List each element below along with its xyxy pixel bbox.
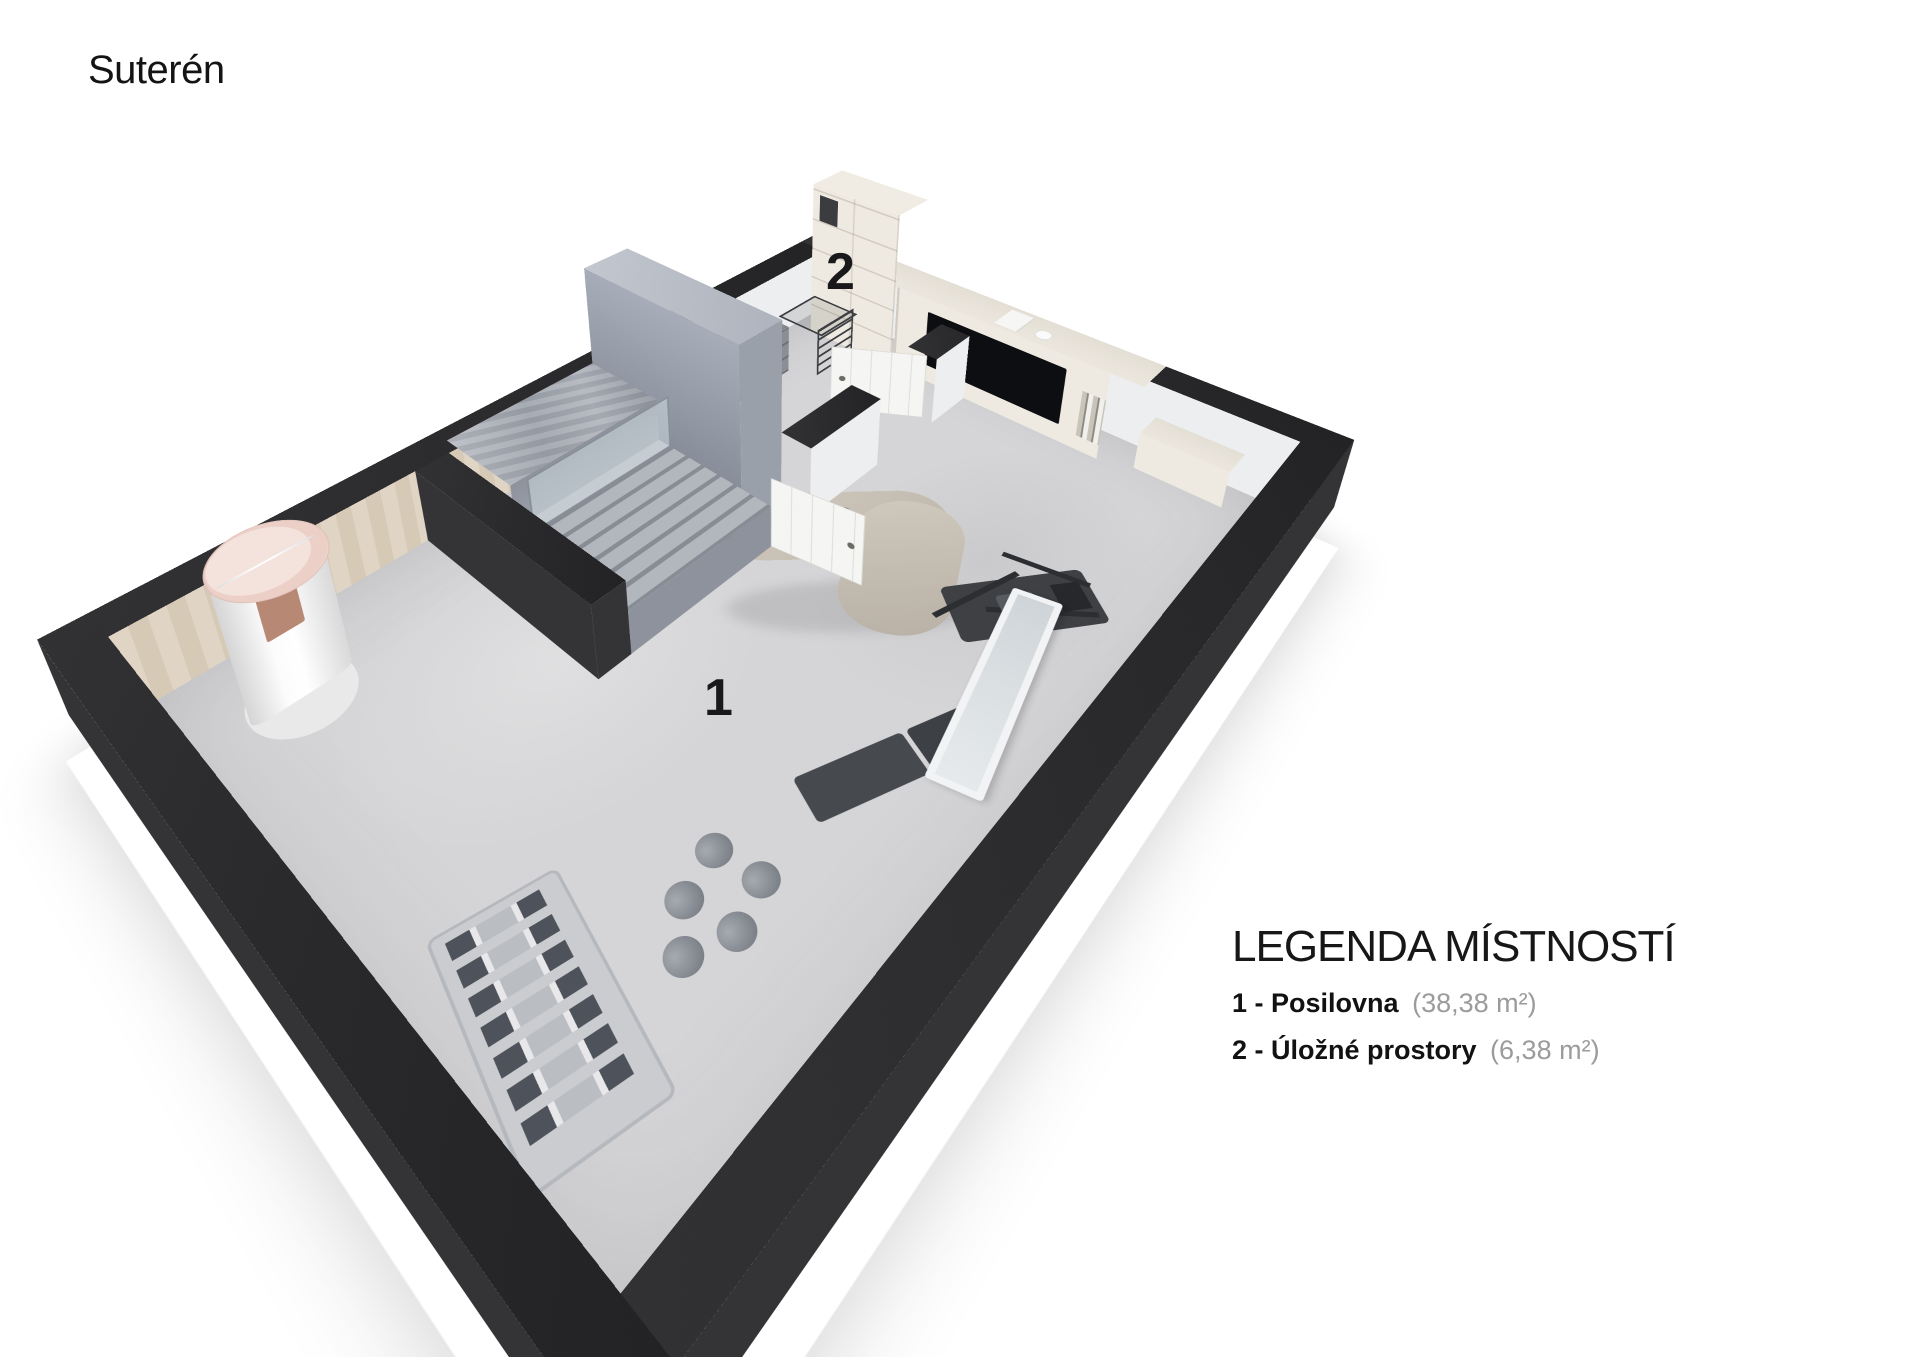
legend-room-1-area: (38,38 m²) bbox=[1412, 988, 1537, 1018]
legend-row-1: 1 - Posilovna (38,38 m²) bbox=[1232, 988, 1675, 1019]
floorplan-page: Suterén bbox=[0, 0, 1920, 1357]
decor-vase bbox=[1031, 329, 1056, 342]
door-handle bbox=[839, 376, 846, 382]
legend-room-2-area: (6,38 m²) bbox=[1490, 1035, 1600, 1065]
legend: LEGENDA MÍSTNOSTÍ 1 - Posilovna (38,38 m… bbox=[1232, 922, 1675, 1066]
decor-letter-b bbox=[820, 195, 839, 227]
legend-row-2: 2 - Úložné prostory (6,38 m²) bbox=[1232, 1035, 1675, 1066]
page-title: Suterén bbox=[88, 48, 225, 93]
room-label-1: 1 bbox=[704, 668, 733, 728]
room-label-2: 2 bbox=[826, 242, 855, 302]
decor-books-row bbox=[1076, 391, 1109, 447]
legend-room-1-name: 1 - Posilovna bbox=[1232, 988, 1399, 1018]
legend-room-2-name: 2 - Úložné prostory bbox=[1232, 1035, 1477, 1065]
door-handle bbox=[847, 541, 854, 550]
floorplan-3d-scene bbox=[69, 287, 1334, 1357]
legend-title: LEGENDA MÍSTNOSTÍ bbox=[1232, 922, 1675, 972]
floorplan-render bbox=[410, 280, 1130, 920]
